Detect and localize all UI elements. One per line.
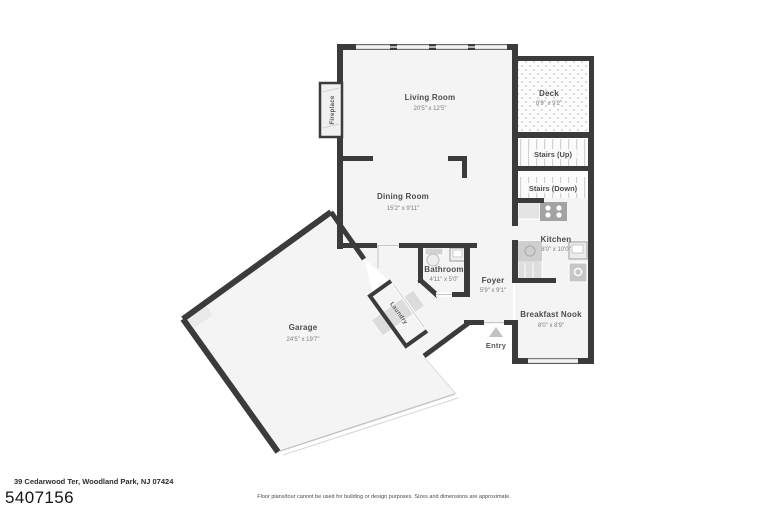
entry-label: Entry [486, 341, 507, 350]
stairs-down-label: Stairs (Down) [529, 184, 578, 193]
bathroom-dims: 4'11" x 5'0" [429, 277, 458, 283]
living-room-dims: 20'5" x 12'5" [414, 106, 447, 112]
fireplace: Fireplace [320, 83, 342, 137]
bathroom-label: Bathroom [424, 265, 463, 274]
kitchen-label: Kitchen [541, 235, 572, 244]
breakfast-nook-dims: 8'0" x 8'9" [538, 323, 564, 329]
foyer-dims: 5'9" x 9'1" [480, 288, 506, 294]
stairs-up-label: Stairs (Up) [534, 150, 572, 159]
foyer-label: Foyer [482, 276, 505, 285]
entry-arrow-icon [489, 327, 503, 337]
kitchen-dims: 8'0" x 10'0" [541, 247, 571, 253]
living-room-label: Living Room [405, 93, 456, 102]
property-address: 39 Cedarwood Ter, Woodland Park, NJ 0742… [14, 477, 173, 486]
deck-label: Deck [539, 89, 559, 98]
disclaimer-text: Floor plans/tour cannot be used for buil… [0, 494, 768, 500]
fireplace-label: Fireplace [330, 95, 336, 124]
deck-dims: 8'9" x 9'2" [536, 101, 562, 107]
entry-marker: Entry [486, 327, 507, 350]
garage-label: Garage [289, 323, 318, 332]
breakfast-nook-label: Breakfast Nook [520, 310, 582, 319]
dishwasher-icon [518, 241, 542, 261]
oven-icon [569, 263, 587, 282]
dining-room-dims: 15'2" x 9'11" [387, 206, 419, 212]
garage-dims: 24'5" x 19'7" [287, 337, 320, 343]
dining-room-label: Dining Room [377, 192, 429, 201]
stove-icon [540, 202, 567, 221]
floor-plan: Fireplace Entry Living Room 20'5" x 12'5… [0, 0, 768, 512]
